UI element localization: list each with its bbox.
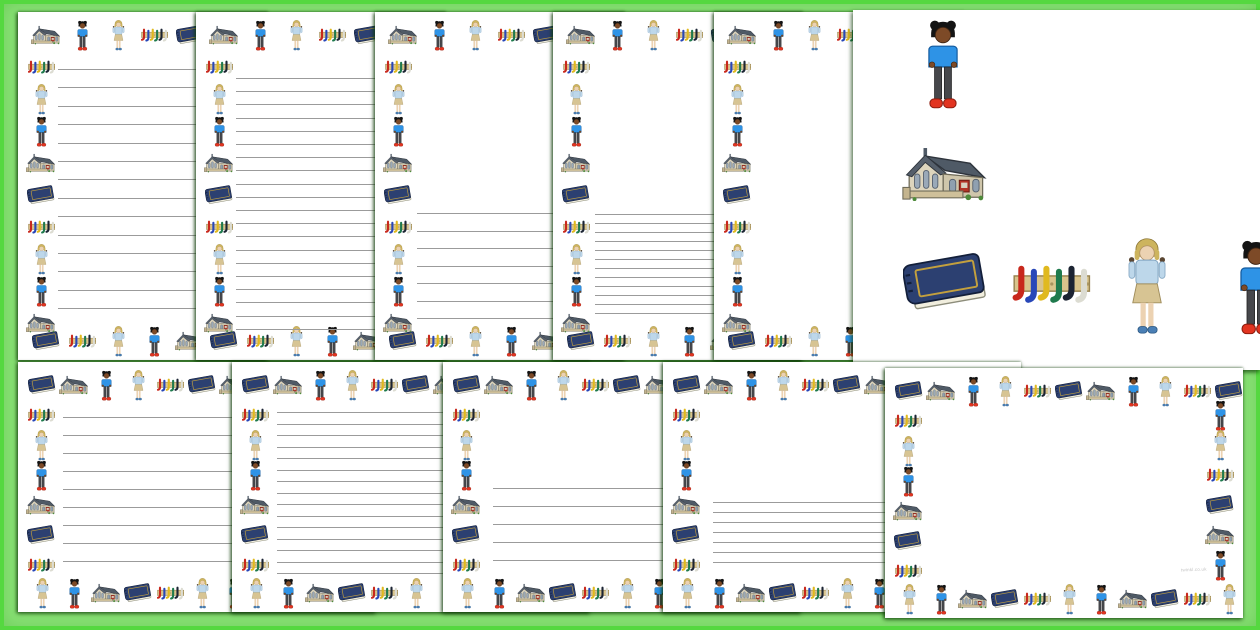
border-icon-cell: [720, 148, 754, 178]
blue-book-icon: [769, 583, 797, 604]
border-icon-cell: [24, 308, 58, 338]
border-icon-cell: [893, 374, 925, 408]
blue-book-icon: [241, 525, 269, 546]
border-icon-cell: [831, 576, 863, 610]
border-icon-cell: [449, 430, 483, 460]
blue-book-icon: [1055, 381, 1083, 402]
school-building-icon: [736, 583, 766, 603]
child-waving-blonde-icon: [777, 370, 790, 401]
border-icon-cell: [24, 400, 58, 430]
border-icon-cell: [136, 324, 172, 358]
child-waving-blonde-icon: [36, 578, 49, 609]
school-building-icon: [31, 25, 61, 45]
border-icon-cell: [336, 368, 368, 402]
border-icon-cell: [559, 308, 593, 338]
border-icon-cell: [720, 84, 754, 114]
border-icon-cell: [421, 324, 457, 358]
border-icon-cell: [278, 18, 314, 52]
child-waving-blonde-icon: [680, 430, 693, 461]
border-icon-cell: [238, 490, 272, 520]
peg-rail-coloured-hooks-icon: [240, 408, 270, 422]
border-icon-cell: [449, 520, 483, 550]
blue-book-icon: [903, 248, 988, 320]
border-icon-cell: [64, 18, 100, 52]
border-icon-cell: [202, 84, 236, 114]
boy-blue-jumper-red-shoes-icon: [148, 326, 161, 357]
boy-blue-jumper-red-shoes-icon: [282, 578, 295, 609]
boy-blue-jumper-red-shoes-icon: [680, 460, 693, 491]
school-building-icon: [722, 313, 752, 333]
blue-book-icon: [402, 375, 430, 396]
border-icon-cell: [58, 576, 90, 610]
blue-book-icon: [27, 185, 55, 206]
border-icon-cell: [669, 460, 703, 490]
peg-rail-coloured-hooks-icon: [26, 558, 56, 572]
blue-book-icon: [27, 525, 55, 546]
boy-blue-jumper-red-shoes-icon: [326, 326, 339, 357]
border-icon-cell: [579, 576, 611, 610]
boy-blue-jumper-red-shoes-icon: [731, 116, 744, 147]
child-waving-blonde-icon: [731, 244, 744, 275]
boy-blue-jumper-red-shoes-icon: [967, 376, 980, 407]
school-building-icon: [516, 583, 546, 603]
peg-rail-coloured-hooks-icon: [451, 408, 481, 422]
child-waving-blonde-icon: [681, 578, 694, 609]
peg-rail-coloured-hooks-icon: [155, 378, 185, 392]
border-icon-cell: [891, 526, 925, 556]
peg-rail-coloured-hooks-icon: [26, 408, 56, 422]
school-building-icon: [451, 495, 481, 515]
border-icon-cell: [957, 374, 989, 408]
child-waving-blonde-icon: [1063, 584, 1076, 615]
border-icon-cell: [796, 324, 832, 358]
boy-blue-jumper-red-shoes-icon: [249, 460, 262, 491]
border-icon-cell: [720, 212, 754, 242]
border-icon-cell: [547, 576, 579, 610]
boy-blue-jumper-red-shoes-icon: [1214, 400, 1227, 431]
boy-blue-jumper-red-shoes-icon: [213, 276, 226, 307]
boy-blue-jumper-red-shoes-icon: [745, 370, 758, 401]
border-icon-cell: [304, 576, 336, 610]
peg-rail-coloured-hooks-icon: [369, 378, 399, 392]
border-icon-cell: [154, 576, 186, 610]
boy-blue-jumper-red-shoes-icon: [772, 20, 785, 51]
border-icon-cell: [202, 148, 236, 178]
child-waving-blonde-icon: [469, 326, 482, 357]
border-icon-cell: [703, 368, 735, 402]
child-waving-blonde-icon: [647, 326, 660, 357]
border-icon-cell: [202, 180, 236, 210]
border-icon-cell: [703, 576, 735, 610]
border-icon-cell: [26, 368, 58, 402]
boy-blue-jumper-red-shoes-icon: [68, 578, 81, 609]
border-icon-cell: [381, 244, 415, 274]
boy-blue-jumper-red-shoes-icon: [100, 370, 113, 401]
child-waving-blonde-icon: [1159, 376, 1172, 407]
border-icon-cell: [238, 520, 272, 550]
child-waving-blonde-icon: [461, 578, 474, 609]
border-icon-cell: [1203, 460, 1237, 490]
border-icon-cell: [457, 18, 493, 52]
child-waving-blonde-icon: [1214, 430, 1227, 461]
border-icon-cell: [154, 368, 186, 402]
border-icon-cell: [720, 180, 754, 210]
border-icon-cell: [611, 368, 643, 402]
border-icon-cell: [202, 116, 236, 146]
border-icon-cell: [24, 276, 58, 306]
child-waving-blonde-icon: [1128, 238, 1166, 336]
school-building-icon: [902, 142, 988, 206]
peg-rail-coloured-hooks-icon: [893, 414, 923, 428]
border-icon-cell: [669, 520, 703, 550]
border-icon-cell: [799, 576, 831, 610]
border-icon-cell: [272, 576, 304, 610]
border-icon-cell: [493, 18, 529, 52]
boy-blue-jumper-red-shoes-icon: [713, 578, 726, 609]
school-building-icon: [204, 313, 234, 333]
border-icon-cell: [893, 582, 925, 616]
child-waving-blonde-icon: [250, 578, 263, 609]
border-icon-cell: [799, 368, 831, 402]
blue-book-icon: [991, 589, 1019, 610]
border-icon-cell: [559, 244, 593, 274]
border-icon-cell: [24, 84, 58, 114]
school-building-icon: [273, 375, 303, 395]
boy-blue-jumper-red-shoes-icon: [35, 116, 48, 147]
child-waving-blonde-icon: [647, 20, 660, 51]
blue-book-icon: [1206, 495, 1234, 516]
border-icon-cell: [449, 400, 483, 430]
blue-book-icon: [453, 375, 481, 396]
boy-blue-jumper-red-shoes-icon: [35, 460, 48, 491]
school-building-icon: [91, 583, 121, 603]
border-icon-cell: [368, 576, 400, 610]
child-waving-blonde-icon: [196, 578, 209, 609]
border-icon-cell: [1021, 374, 1053, 408]
page-landscape-blank: [885, 368, 1243, 618]
peg-rail-coloured-hooks-icon: [1205, 468, 1235, 482]
school-building-icon: [26, 313, 56, 333]
border-icon-cell: [957, 582, 989, 616]
border-icon-cell: [635, 324, 671, 358]
child-waving-blonde-icon: [808, 20, 821, 51]
border-icon-cell: [989, 374, 1021, 408]
border-icon-cell: [336, 576, 368, 610]
border-icon-cell: [669, 550, 703, 580]
boy-blue-jumper-red-shoes-icon: [314, 370, 327, 401]
boy-blue-jumper-red-shoes-icon: [902, 466, 915, 497]
border-icon-cell: [1213, 582, 1243, 616]
border-icon-cell: [796, 18, 832, 52]
boy-blue-jumper-red-shoes-icon: [493, 578, 506, 609]
child-waving-blonde-icon: [132, 370, 145, 401]
peg-rail-coloured-hooks-icon: [893, 564, 923, 578]
border-icon-cell: [559, 116, 593, 146]
boy-blue-jumper-red-shoes-icon: [35, 276, 48, 307]
border-icon-cell: [1117, 582, 1149, 616]
border-icon-cell: [58, 368, 90, 402]
border-icon-cell: [381, 180, 415, 210]
school-building-icon: [1205, 525, 1235, 545]
border-icon-cell: [26, 576, 58, 610]
school-building-icon: [704, 375, 734, 395]
border-icon-cell: [989, 582, 1021, 616]
boy-blue-jumper-red-shoes-icon: [433, 20, 446, 51]
peg-rail-coloured-hooks-icon: [580, 378, 610, 392]
border-icon-cell: [238, 550, 272, 580]
peg-rail-coloured-hooks-icon: [722, 60, 752, 74]
blue-book-icon: [673, 375, 701, 396]
border-icon-cell: [122, 368, 154, 402]
border-icon-cell: [28, 18, 64, 52]
boy-blue-jumper-red-shoes-icon: [76, 20, 89, 51]
border-icon-cell: [720, 116, 754, 146]
peg-rail-coloured-hooks-icon: [1022, 384, 1052, 398]
peg-rail-coloured-hooks-icon: [722, 220, 752, 234]
border-icon-cell: [493, 324, 529, 358]
peg-rail-coloured-hooks-icon: [317, 28, 347, 42]
school-building-icon: [305, 583, 335, 603]
blue-book-icon: [562, 185, 590, 206]
peg-rail-coloured-hooks-icon: [1182, 592, 1212, 606]
border-icon-cell: [24, 460, 58, 490]
border-icon-cell: [240, 368, 272, 402]
boy-blue-jumper-red-shoes-icon: [213, 116, 226, 147]
child-waving-blonde-icon: [290, 326, 303, 357]
peg-rail-coloured-hooks-icon: [26, 60, 56, 74]
child-waving-blonde-icon: [731, 84, 744, 115]
border-icon-cell: [186, 368, 218, 402]
school-building-icon: [383, 313, 413, 333]
peg-rail-coloured-hooks-icon: [451, 558, 481, 572]
border-icon-cell: [381, 276, 415, 306]
border-icon-cell: [457, 324, 493, 358]
border-icon-cell: [240, 576, 272, 610]
border-icon-cell: [599, 18, 635, 52]
border-icon-cell: [381, 212, 415, 242]
blue-book-icon: [188, 375, 216, 396]
peg-rail-coloured-hooks-icon: [240, 558, 270, 572]
peg-rail-coloured-hooks-icon: [67, 334, 97, 348]
school-building-icon: [727, 25, 757, 45]
border-icon-cell: [925, 374, 957, 408]
border-icon-cell: [1149, 374, 1181, 408]
border-icon-cell: [24, 520, 58, 550]
clipart-preview-panel: [853, 10, 1260, 370]
border-icon-cell: [767, 368, 799, 402]
child-waving-blonde-icon: [392, 244, 405, 275]
child-waving-blonde-icon: [460, 430, 473, 461]
border-icon-cell: [451, 576, 483, 610]
border-icon-cell: [671, 576, 703, 610]
border-icon-cell: [1085, 374, 1117, 408]
border-icon-cell: [925, 582, 957, 616]
border-icon-cell: [449, 460, 483, 490]
child-waving-blonde-icon: [392, 84, 405, 115]
blue-book-icon: [549, 583, 577, 604]
border-icon-cell: [515, 576, 547, 610]
boy-blue-jumper-red-shoes-icon: [683, 326, 696, 357]
child-waving-blonde-icon: [902, 436, 915, 467]
peg-rail-coloured-hooks-icon: [602, 334, 632, 348]
border-icon-cell: [400, 576, 432, 610]
border-icon-cell: [1203, 490, 1237, 520]
school-building-icon: [240, 495, 270, 515]
peg-rail-coloured-hooks-icon: [383, 220, 413, 234]
child-waving-blonde-icon: [808, 326, 821, 357]
blue-book-icon: [723, 185, 751, 206]
child-waving-blonde-icon: [570, 244, 583, 275]
border-icon-cell: [24, 244, 58, 274]
border-icon-cell: [483, 576, 515, 610]
border-icon-cell: [90, 368, 122, 402]
border-icon-cell: [64, 324, 100, 358]
border-icon-cell: [242, 18, 278, 52]
school-building-icon: [204, 153, 234, 173]
peg-rail-coloured-hooks-icon: [26, 220, 56, 234]
child-waving-blonde-icon: [557, 370, 570, 401]
border-icon-cell: [304, 368, 336, 402]
peg-rail-coloured-hooks-icon: [204, 220, 234, 234]
border-icon-cell: [421, 18, 457, 52]
child-waving-blonde-icon: [841, 578, 854, 609]
border-icon-cell: [100, 324, 136, 358]
border-icon-cell: [559, 276, 593, 306]
blue-book-icon: [205, 185, 233, 206]
peg-rail-coloured-hooks-icon: [671, 408, 701, 422]
border-icon-cell: [559, 212, 593, 242]
border-icon-cell: [671, 18, 707, 52]
border-icon-cell: [238, 400, 272, 430]
border-icon-cell: [559, 180, 593, 210]
blue-book-icon: [894, 531, 922, 552]
school-building-icon: [671, 495, 701, 515]
border-icon-cell: [24, 116, 58, 146]
border-icon-cell: [563, 18, 599, 52]
peg-rail-coloured-hooks-icon: [671, 558, 701, 572]
child-waving-blonde-icon: [570, 84, 583, 115]
boy-blue-jumper-red-shoes-icon: [611, 20, 624, 51]
border-icon-cell: [891, 496, 925, 526]
border-icon-cell: [579, 368, 611, 402]
border-icon-cell: [381, 308, 415, 338]
peg-rail-coloured-hooks-icon: [424, 334, 454, 348]
child-waving-blonde-icon: [249, 430, 262, 461]
border-icon-cell: [451, 368, 483, 402]
border-icon-cell: [202, 52, 236, 82]
peg-rail-coloured-hooks-icon: [383, 60, 413, 74]
border-icon-cell: [1203, 520, 1237, 550]
child-waving-blonde-icon: [112, 20, 125, 51]
school-building-icon: [388, 25, 418, 45]
border-icon-cell: [449, 550, 483, 580]
border-icon-cell: [24, 52, 58, 82]
border-icon-cell: [202, 212, 236, 242]
child-waving-blonde-icon: [999, 376, 1012, 407]
boy-blue-jumper-red-shoes-icon: [392, 116, 405, 147]
blue-book-icon: [338, 583, 366, 604]
border-icon-cell: [122, 576, 154, 610]
border-icon-cell: [760, 18, 796, 52]
border-icon-cell: [202, 308, 236, 338]
boy-blue-jumper-red-shoes-icon: [873, 578, 886, 609]
border-icon-cell: [206, 18, 242, 52]
school-building-icon: [926, 381, 956, 401]
border-icon-cell: [483, 368, 515, 402]
border-icon-cell: [24, 490, 58, 520]
border-icon-cell: [381, 52, 415, 82]
border-icon-cell: [24, 550, 58, 580]
child-waving-blonde-icon: [1223, 584, 1236, 615]
border-icon-cell: [90, 576, 122, 610]
border-icon-cell: [720, 52, 754, 82]
child-waving-blonde-icon: [621, 578, 634, 609]
border-icon-cell: [599, 324, 635, 358]
child-waving-blonde-icon: [410, 578, 423, 609]
border-icon-cell: [368, 368, 400, 402]
border-icon-cell: [767, 576, 799, 610]
boy-blue-jumper-red-shoes-icon: [392, 276, 405, 307]
boy-blue-jumper-red-shoes-icon: [460, 460, 473, 491]
school-building-icon: [209, 25, 239, 45]
border-icon-cell: [891, 556, 925, 586]
school-building-icon: [26, 495, 56, 515]
boy-blue-jumper-red-shoes-icon: [1237, 238, 1260, 336]
peg-rail-coloured-hooks-icon: [800, 586, 830, 600]
boy-blue-jumper-red-shoes-icon: [731, 276, 744, 307]
border-icon-cell: [1181, 582, 1213, 616]
child-waving-blonde-icon: [213, 84, 226, 115]
peg-rail-coloured-hooks-icon: [1182, 384, 1212, 398]
border-icon-cell: [1085, 582, 1117, 616]
school-building-icon: [1086, 381, 1116, 401]
border-icon-cell: [1203, 430, 1237, 460]
peg-rail-coloured-hooks-icon: [496, 28, 526, 42]
border-icon-cell: [831, 368, 863, 402]
school-building-icon: [893, 501, 923, 521]
boy-blue-jumper-red-shoes-icon: [525, 370, 538, 401]
boy-blue-jumper-red-shoes-icon: [935, 584, 948, 615]
child-waving-blonde-icon: [213, 244, 226, 275]
boy-blue-jumper-red-shoes-icon: [925, 18, 961, 110]
border-icon-cell: [669, 400, 703, 430]
blue-book-icon: [1215, 381, 1243, 402]
boy-blue-jumper-red-shoes-icon: [570, 276, 583, 307]
boy-blue-jumper-red-shoes-icon: [1214, 550, 1227, 581]
school-building-icon: [722, 153, 752, 173]
border-icon-cell: [1053, 374, 1085, 408]
border-icon-cell: [400, 368, 432, 402]
border-icon-cell: [202, 276, 236, 306]
border-icon-cell: [381, 148, 415, 178]
border-icon-cell: [611, 576, 643, 610]
peg-rail-coloured-hooks-icon: [674, 28, 704, 42]
border-icon-cell: [724, 18, 760, 52]
peg-rail-coloured-hooks-icon: [800, 378, 830, 392]
border-icon-cell: [671, 368, 703, 402]
border-icon-cell: [449, 490, 483, 520]
border-icon-cell: [238, 460, 272, 490]
border-icon-cell: [1203, 400, 1237, 430]
blue-book-icon: [452, 525, 480, 546]
school-building-icon: [26, 153, 56, 173]
boy-blue-jumper-red-shoes-icon: [570, 116, 583, 147]
child-waving-blonde-icon: [35, 244, 48, 275]
border-icon-cell: [1149, 582, 1181, 616]
school-building-icon: [561, 313, 591, 333]
child-waving-blonde-icon: [346, 370, 359, 401]
blue-book-icon: [613, 375, 641, 396]
